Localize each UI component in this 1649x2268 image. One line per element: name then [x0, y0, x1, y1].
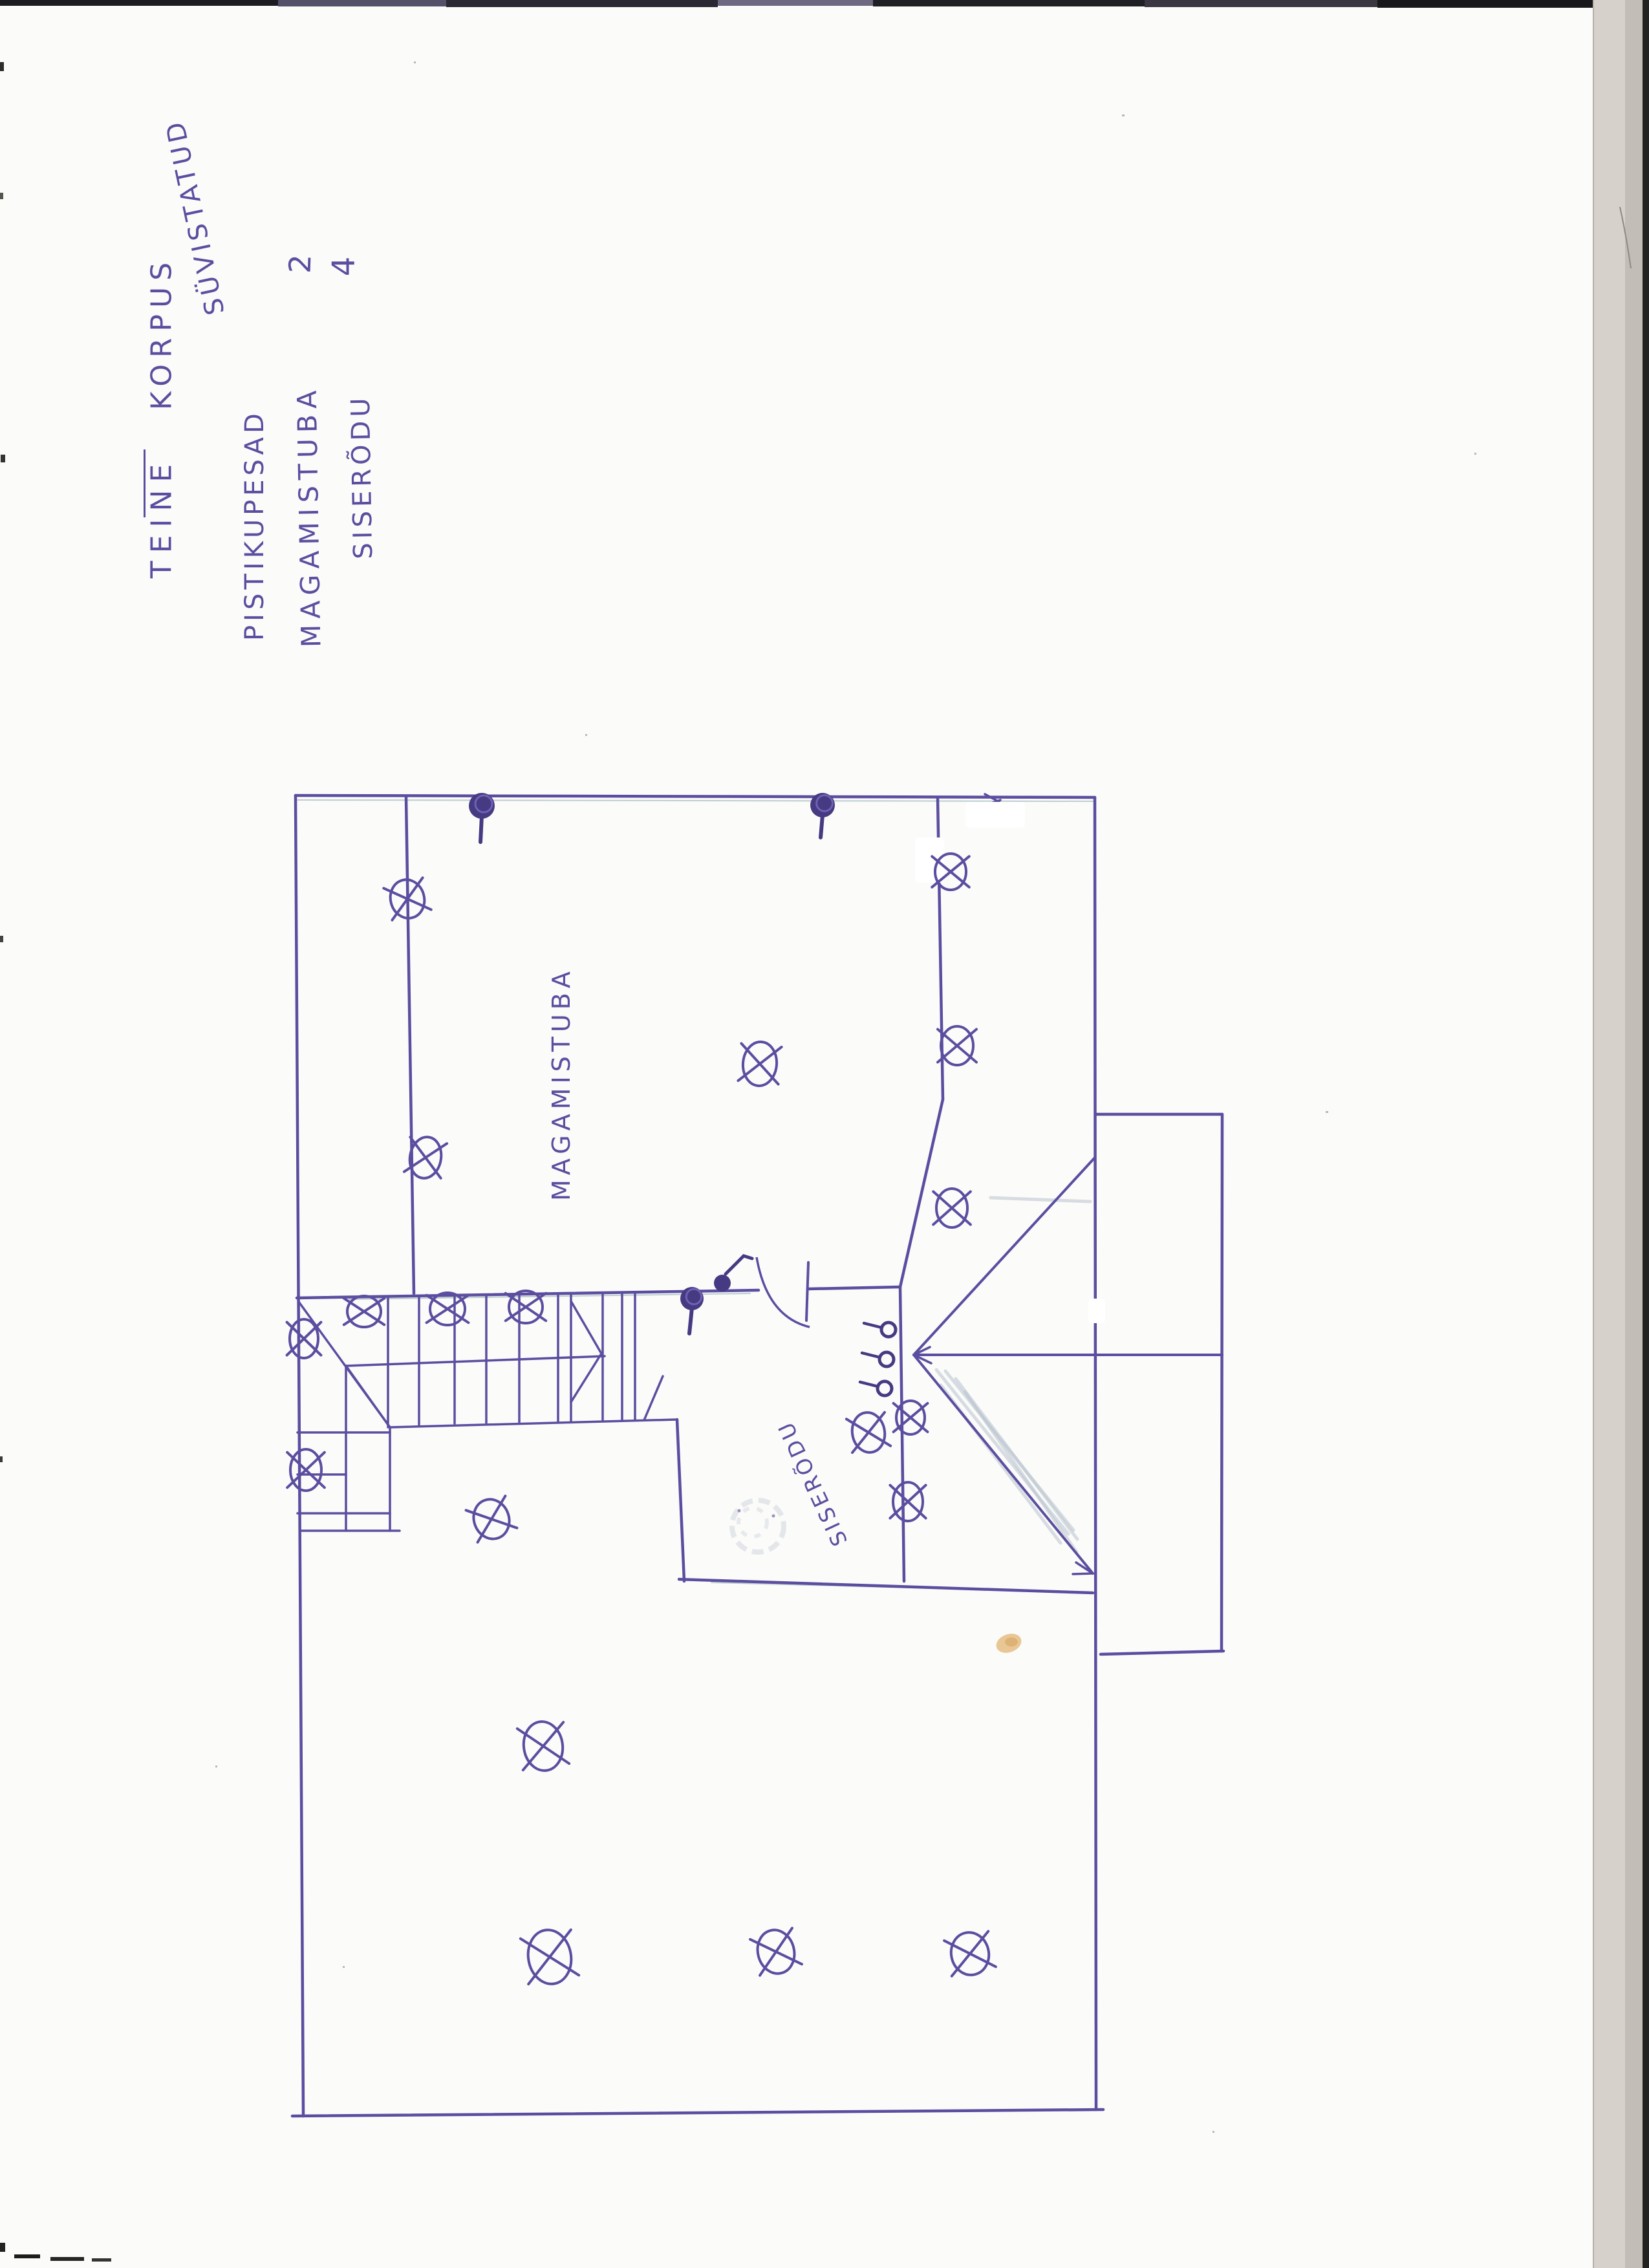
roof-diagonal	[914, 1355, 1093, 1573]
pencil-underline	[297, 800, 1093, 801]
stair-line	[571, 1354, 601, 1402]
paper-speck	[215, 1766, 217, 1767]
outlet-symbol	[287, 1449, 325, 1491]
wall-line	[1095, 797, 1096, 2110]
lamp-stem	[480, 816, 482, 842]
header-building-title-word2: KORPUS	[145, 256, 178, 410]
smudge-speck	[772, 1515, 775, 1518]
scanner-bottom-dash	[92, 2258, 111, 2262]
scanner-right-band-shade	[1625, 0, 1643, 2268]
header-room2-label: SISERÕDU	[346, 394, 378, 559]
wall-line	[1101, 1651, 1223, 1654]
switch-blob	[878, 1381, 892, 1396]
paper-right-edge-line	[1593, 0, 1594, 2268]
header-building-title-word1: TEINE	[145, 457, 178, 578]
header-sockets-word1: PISTIKUPESAD	[240, 409, 270, 641]
outlet-symbol	[465, 1493, 518, 1545]
scanner-left-speck	[0, 193, 3, 199]
paper-speck	[1474, 453, 1476, 455]
wall-line	[1222, 1114, 1222, 1651]
ceiling-lamp-symbol	[469, 793, 495, 842]
scanner-top-edge	[0, 0, 278, 6]
paper-speck	[1122, 114, 1125, 116]
roof-diagonal	[914, 1158, 1095, 1355]
outlet-symbol	[846, 1409, 891, 1455]
scanned-page: TEINE KORPUS PISTIKUPESAD SÜVISTATUD MAG…	[0, 0, 1649, 2268]
outlet-symbol	[517, 1718, 570, 1773]
ceiling-lamp-symbol	[810, 793, 835, 837]
stair-line	[571, 1301, 601, 1354]
outlet-symbol	[894, 1401, 928, 1434]
switch-symbol	[860, 1381, 892, 1396]
orange-mark-core	[1005, 1637, 1018, 1647]
wall-line	[296, 795, 1095, 797]
outlet-symbol	[738, 1040, 782, 1087]
stair-line	[390, 1420, 677, 1427]
switch-blob	[881, 1323, 896, 1337]
ceiling-lamp-symbol	[680, 1287, 704, 1334]
scanner-left-speck	[1, 455, 5, 462]
switch-tail	[862, 1353, 880, 1357]
outlet-cross-line	[738, 1043, 781, 1084]
paper-speck	[1326, 1111, 1328, 1113]
whiteout-patch	[965, 802, 1025, 828]
smudge-speck	[738, 1509, 741, 1513]
lamp-stem	[821, 815, 823, 837]
wall-line	[679, 1579, 1093, 1593]
header-room1-count: 2	[283, 254, 318, 274]
switch-tail	[864, 1323, 882, 1328]
switch-symbol	[864, 1323, 896, 1337]
paper-speck	[585, 734, 587, 736]
door-leaf	[806, 1262, 808, 1321]
arrow-tick	[1073, 1573, 1093, 1574]
wall-line	[808, 1287, 900, 1289]
outlet-symbol	[520, 1926, 580, 1988]
stair-line	[346, 1356, 605, 1366]
wall-line	[406, 797, 414, 1293]
stair-line	[644, 1376, 663, 1420]
outlet-symbol	[890, 1482, 925, 1521]
floor-plan-drawing	[0, 0, 1649, 2268]
outlet-cross-line	[517, 1722, 569, 1770]
scanner-left-speck	[0, 2243, 5, 2252]
switch-symbol	[862, 1352, 894, 1366]
scanner-left-speck	[0, 936, 3, 942]
wall-line	[900, 1287, 904, 1581]
scanner-top-edge	[718, 0, 873, 6]
outlet-symbol	[749, 1925, 803, 1978]
header-room2-count: 4	[326, 257, 362, 277]
wall-light-symbol	[714, 1275, 731, 1291]
outlet-symbol	[943, 1928, 997, 1979]
paper-speck	[343, 1966, 345, 1968]
scanner-top-edge	[446, 0, 718, 7]
macron-line	[144, 449, 145, 517]
header-room1-label: MAGAMISTUBA	[291, 384, 327, 647]
lamp-stem	[689, 1308, 692, 1334]
eraser-smudge-inner	[738, 1508, 767, 1537]
scanner-top-edge	[278, 0, 446, 6]
outlet-symbol	[344, 1296, 384, 1327]
scanner-left-speck	[0, 1456, 3, 1462]
wall-light-hook	[726, 1256, 752, 1274]
scanner-right-dark-edge	[1643, 0, 1649, 2268]
wall-line	[677, 1420, 684, 1581]
scanner-bottom-dash	[50, 2257, 84, 2261]
paper-speck	[1212, 2131, 1214, 2133]
switch-tail	[860, 1382, 878, 1387]
door-arc	[757, 1257, 810, 1327]
whiteout-patch	[1088, 1299, 1105, 1323]
paper-speck	[414, 61, 416, 63]
stair-line	[346, 1366, 390, 1427]
outlet-symbol	[933, 1189, 971, 1227]
scanner-top-edge	[873, 0, 1145, 6]
wall-line	[296, 795, 303, 2116]
pencil-stroke	[991, 1198, 1090, 1202]
pencil-stroke	[965, 1392, 1077, 1552]
scanner-top-edge	[1145, 0, 1377, 7]
scanner-bottom-dash	[14, 2254, 40, 2258]
room-label-magamistuba: MAGAMISTUBA	[547, 967, 576, 1201]
switch-blob	[879, 1352, 894, 1366]
scanner-left-speck	[0, 62, 4, 71]
wall-line	[292, 2110, 1103, 2116]
